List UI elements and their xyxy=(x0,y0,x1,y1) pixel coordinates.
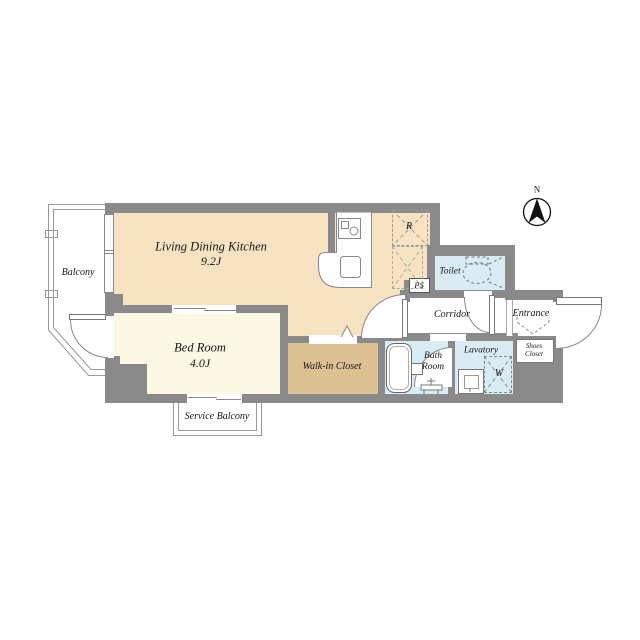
bedroom-sliding-door xyxy=(172,305,236,314)
service-balcony-label: Service Balcony xyxy=(185,411,250,423)
entrance-door-arc xyxy=(556,305,602,349)
wall xyxy=(105,203,440,213)
shoes-closet-label: Shoes Closet xyxy=(525,342,543,359)
ldk-door-leaf xyxy=(402,299,408,338)
ldk-area-label: 9.2J xyxy=(201,254,221,268)
wall xyxy=(105,356,120,403)
balcony-rail-bracket xyxy=(45,230,58,238)
bedroom-window xyxy=(187,394,242,403)
toilet-label: Toilet xyxy=(439,266,460,277)
bedroom-label: Bed Room xyxy=(174,341,226,356)
wall xyxy=(427,245,515,256)
wall xyxy=(105,294,123,308)
closet-opening xyxy=(309,335,357,344)
wall xyxy=(378,333,385,403)
entrance-label: Entrance xyxy=(513,308,550,320)
compass-icon xyxy=(524,199,551,226)
pipe-space-label: PS xyxy=(414,280,423,290)
balcony-label: Balcony xyxy=(62,267,95,279)
room-living-dining-kitchen xyxy=(113,212,432,297)
entrance-door-leaf xyxy=(556,297,602,305)
refrigerator-label: R xyxy=(406,221,412,233)
toilet-door-leaf xyxy=(489,295,495,335)
balcony-window xyxy=(104,214,114,293)
floor-plan: Living Dining Kitchen 9.2J Bed Room 4.0J… xyxy=(0,0,640,640)
ldk-label: Living Dining Kitchen xyxy=(155,240,267,255)
kitchen-partition-wall xyxy=(328,212,335,255)
bedroom-area-label: 4.0J xyxy=(190,356,210,370)
lavatory-doorway xyxy=(430,334,466,341)
washer-label: W xyxy=(495,368,503,380)
corridor-label: Corridor xyxy=(434,309,470,321)
wall xyxy=(280,305,288,403)
wall xyxy=(119,394,563,403)
balcony-door-arc xyxy=(70,320,108,358)
balcony-rail-bracket xyxy=(45,290,58,298)
bath-room-label: Bath Room xyxy=(422,351,444,373)
lavatory-label: Lavatory xyxy=(464,345,498,356)
walk-in-closet-label: Walk-in Closet xyxy=(303,361,362,373)
compass-north-label: N xyxy=(534,185,541,196)
